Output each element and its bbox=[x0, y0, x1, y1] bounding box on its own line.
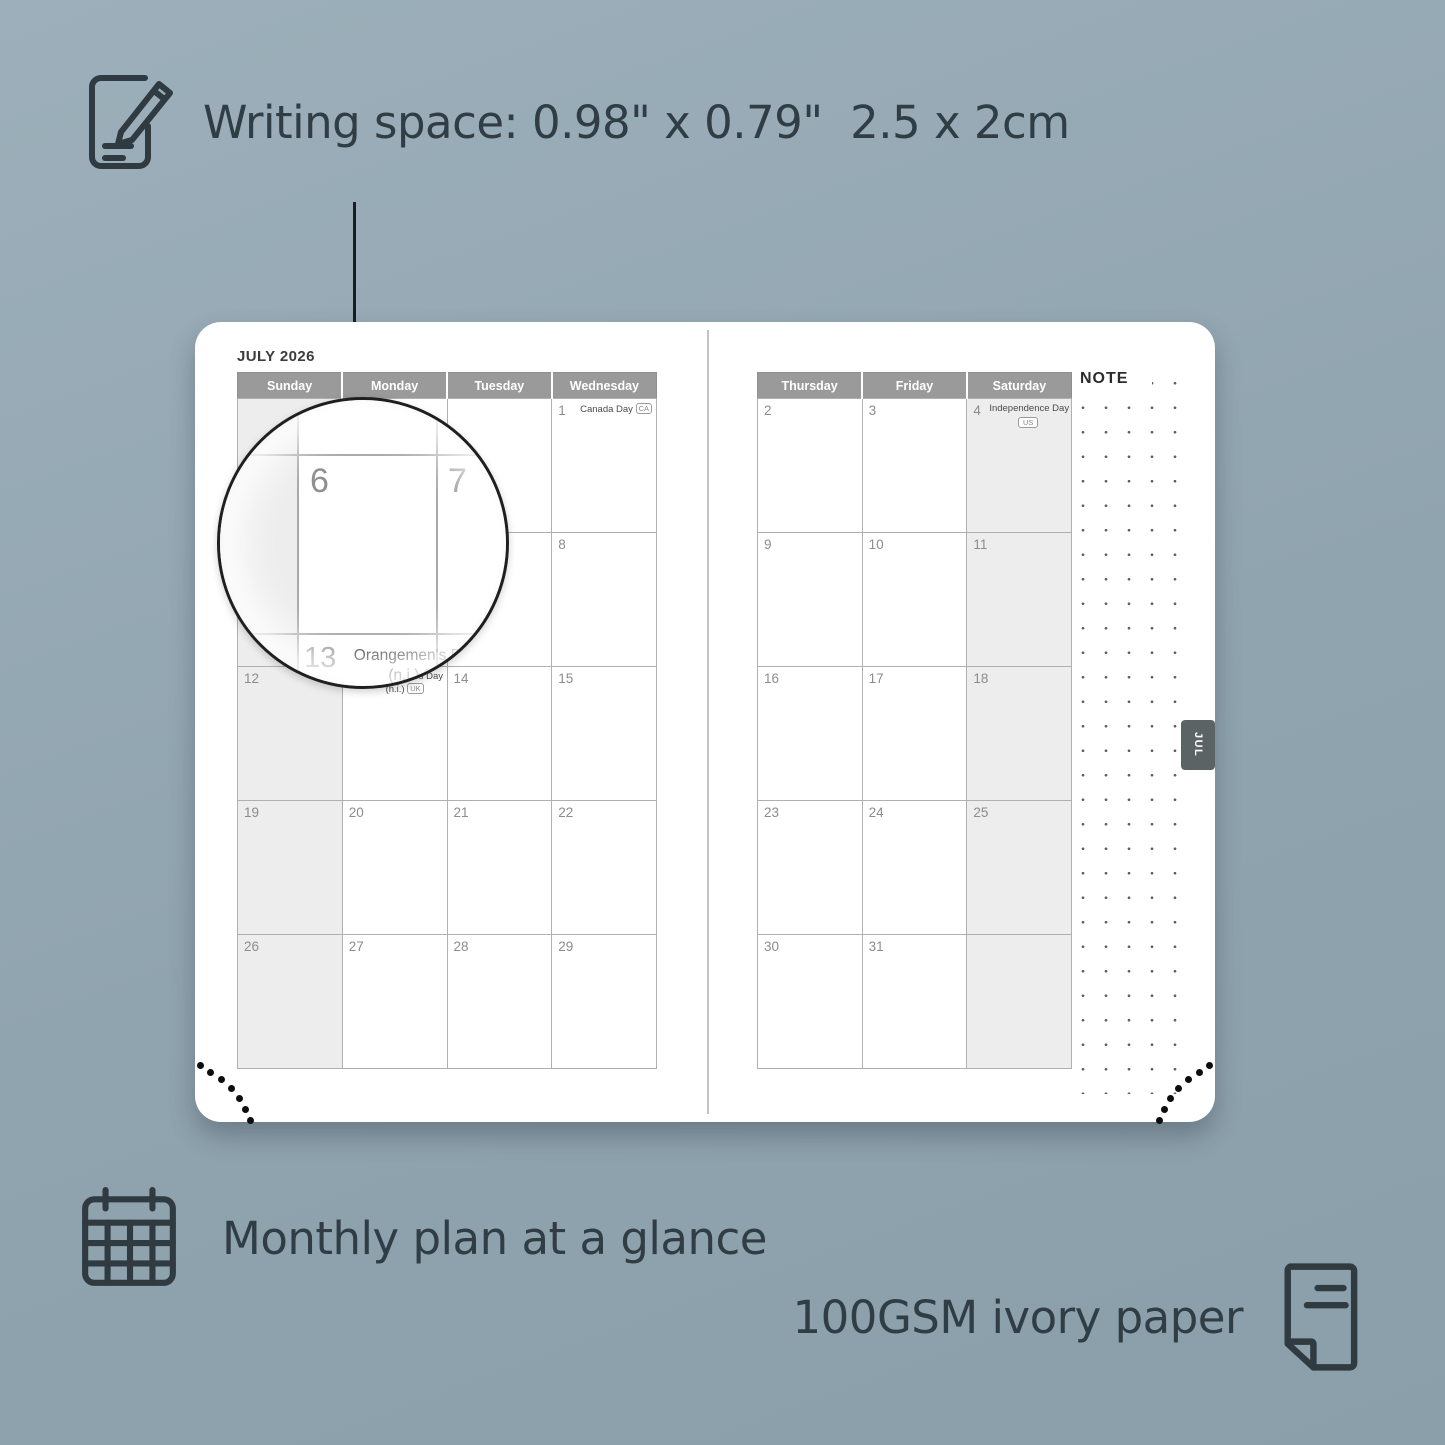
calendar-cell: 19 bbox=[238, 801, 343, 935]
day-number: 23 bbox=[764, 805, 779, 820]
calendar-cell: 4Independence Day US bbox=[967, 399, 1072, 533]
day-number: 9 bbox=[764, 537, 772, 552]
day-header: Wednesday bbox=[552, 373, 657, 399]
paper-sheet-icon bbox=[1277, 1262, 1367, 1372]
calendar-cell: 26 bbox=[238, 935, 343, 1069]
day-number: 31 bbox=[869, 939, 884, 954]
note-dot-grid bbox=[1080, 372, 1188, 1094]
paper-text: 100GSM ivory paper bbox=[793, 1291, 1243, 1344]
calendar-cell: 1Canada Day CA bbox=[552, 399, 657, 533]
pencil-note-icon bbox=[85, 70, 177, 174]
day-number: 10 bbox=[869, 537, 884, 552]
day-number: 25 bbox=[973, 805, 988, 820]
calendar-cell: 9 bbox=[758, 533, 863, 667]
day-header: Saturday bbox=[967, 373, 1072, 399]
day-header: Monday bbox=[342, 373, 447, 399]
day-number: 20 bbox=[349, 805, 364, 820]
perforation-dot bbox=[236, 1095, 243, 1102]
feature-writing-space: Writing space: 0.98" x 0.79" 2.5 x 2cm bbox=[85, 70, 1070, 174]
calendar-icon bbox=[78, 1186, 180, 1290]
page-spine bbox=[707, 330, 709, 1114]
calendar-cell: 16 bbox=[758, 667, 863, 801]
day-number: 16 bbox=[764, 671, 779, 686]
calendar-right-page: ThursdayFridaySaturday234Independence Da… bbox=[757, 372, 1072, 1069]
calendar-cell: 29 bbox=[552, 935, 657, 1069]
perforation-dot bbox=[207, 1069, 214, 1076]
calendar-cell: 14 bbox=[447, 667, 552, 801]
product-showcase: Writing space: 0.98" x 0.79" 2.5 x 2cm J… bbox=[0, 0, 1445, 1445]
calendar-cell: 23 bbox=[758, 801, 863, 935]
day-number: 29 bbox=[558, 939, 573, 954]
day-number: 11 bbox=[973, 537, 987, 552]
calendar-cell: 15 bbox=[552, 667, 657, 801]
calendar-cell: 11 bbox=[967, 533, 1072, 667]
day-number: 22 bbox=[558, 805, 573, 820]
perforation-dot bbox=[1206, 1062, 1213, 1069]
calendar-cell: 25 bbox=[967, 801, 1072, 935]
feature-paper: 100GSM ivory paper bbox=[793, 1262, 1367, 1372]
day-number: 17 bbox=[869, 671, 884, 686]
day-number: 2 bbox=[764, 403, 772, 418]
holiday-country-badge: CA bbox=[636, 403, 652, 414]
calendar-cell: 8 bbox=[552, 533, 657, 667]
calendar-cell: 28 bbox=[447, 935, 552, 1069]
holiday-entry: Independence Day US bbox=[989, 403, 1067, 428]
calendar-cell: 18 bbox=[967, 667, 1072, 801]
lens-vignette bbox=[220, 400, 506, 686]
calendar-cell: 31 bbox=[862, 935, 967, 1069]
calendar-cell: 20 bbox=[342, 801, 447, 935]
holiday-entry: Canada Day CA bbox=[576, 403, 652, 416]
day-number: 15 bbox=[558, 671, 573, 686]
day-number: 24 bbox=[869, 805, 884, 820]
day-number: 3 bbox=[869, 403, 877, 418]
perforation-dot bbox=[1175, 1085, 1182, 1092]
day-number: 18 bbox=[973, 671, 988, 686]
perforation-dot bbox=[1161, 1106, 1168, 1113]
calendar-cell: 10 bbox=[862, 533, 967, 667]
holiday-country-badge: US bbox=[1018, 417, 1038, 428]
day-header: Friday bbox=[862, 373, 967, 399]
day-header: Tuesday bbox=[447, 373, 552, 399]
day-number: 4 bbox=[973, 403, 981, 418]
day-number: 28 bbox=[454, 939, 469, 954]
day-header: Thursday bbox=[758, 373, 863, 399]
monthly-plan-text: Monthly plan at a glance bbox=[222, 1212, 767, 1265]
perforation-dot bbox=[197, 1062, 204, 1069]
magnifier-circle: 6 7 13 Orangemen's Day (n.i.) UK bbox=[217, 397, 509, 689]
day-number: 27 bbox=[349, 939, 364, 954]
month-title: JULY 2026 bbox=[237, 348, 315, 365]
calendar-cell: 2 bbox=[758, 399, 863, 533]
perforation-dot bbox=[247, 1117, 254, 1124]
perforation-dot bbox=[1196, 1069, 1203, 1076]
month-tab-jul: JUL bbox=[1181, 720, 1215, 770]
day-number: 8 bbox=[558, 537, 566, 552]
perforation-dot bbox=[1185, 1076, 1192, 1083]
calendar-cell: 12 bbox=[238, 667, 343, 801]
calendar-cell: 22 bbox=[552, 801, 657, 935]
day-number: 30 bbox=[764, 939, 779, 954]
note-label: NOTE bbox=[1080, 370, 1152, 396]
magnified-holiday-badge: UK bbox=[424, 669, 444, 684]
day-number: 26 bbox=[244, 939, 259, 954]
writing-space-text: Writing space: 0.98" x 0.79" 2.5 x 2cm bbox=[203, 96, 1070, 149]
calendar-cell: 27 bbox=[342, 935, 447, 1069]
perforation-dot bbox=[228, 1085, 235, 1092]
perforation-dot bbox=[218, 1076, 225, 1083]
calendar-cell: 3 bbox=[862, 399, 967, 533]
day-number: 1 bbox=[558, 403, 566, 418]
month-tab-label: JUL bbox=[1192, 732, 1204, 757]
calendar-cell: 21 bbox=[447, 801, 552, 935]
calendar-cell: 30 bbox=[758, 935, 863, 1069]
perforation-dot bbox=[1167, 1095, 1174, 1102]
perforation-dot bbox=[1156, 1117, 1163, 1124]
calendar-cell: 24 bbox=[862, 801, 967, 935]
calendar-cell: 17 bbox=[862, 667, 967, 801]
calendar-cell bbox=[967, 935, 1072, 1069]
day-number: 19 bbox=[244, 805, 259, 820]
perforation-dot bbox=[242, 1106, 249, 1113]
day-number: 21 bbox=[454, 805, 469, 820]
feature-monthly-plan: Monthly plan at a glance bbox=[78, 1186, 767, 1290]
day-header: Sunday bbox=[238, 373, 343, 399]
